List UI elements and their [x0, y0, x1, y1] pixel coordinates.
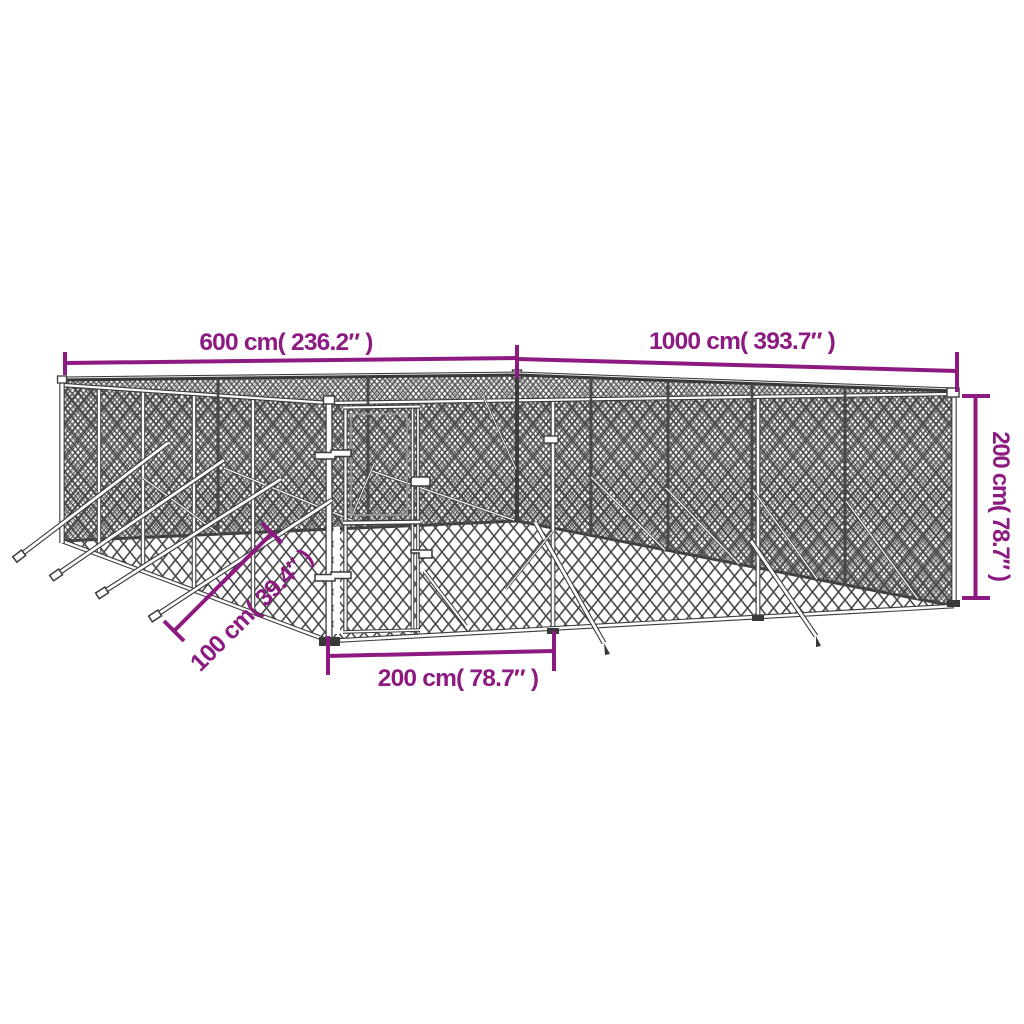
svg-text:600 cm( 236.2″ ): 600 cm( 236.2″ ) [199, 329, 372, 356]
svg-text:200 cm( 78.7″ ): 200 cm( 78.7″ ) [987, 431, 1014, 581]
svg-text:1000 cm( 393.7″ ): 1000 cm( 393.7″ ) [649, 328, 835, 355]
svg-text:200 cm( 78.7″ ): 200 cm( 78.7″ ) [378, 665, 538, 692]
